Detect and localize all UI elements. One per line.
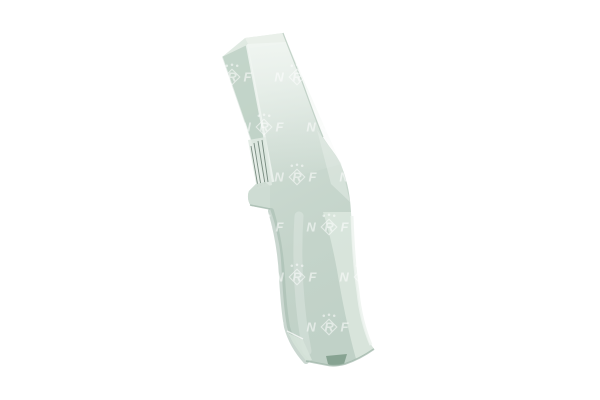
- watermark-letter: N: [144, 70, 154, 85]
- watermark-dot: [393, 313, 396, 316]
- watermark-dot: [236, 164, 239, 167]
- watermark-dot: [73, 214, 76, 217]
- watermark-letter: N: [534, 170, 544, 185]
- watermark-letter: N: [404, 270, 414, 285]
- watermark-dot: [523, 113, 526, 116]
- watermark-letter: F: [309, 70, 318, 85]
- watermark-letter: R: [129, 220, 139, 235]
- watermark-dot: [356, 64, 359, 67]
- watermark-dot: [593, 314, 596, 317]
- watermark-letter: N: [404, 170, 414, 185]
- watermark-letter: F: [341, 20, 350, 35]
- watermark-dot: [138, 114, 141, 117]
- watermark-dot: [361, 63, 364, 65]
- watermark-dot: [333, 14, 336, 17]
- watermark-dot: [101, 363, 104, 366]
- watermark-dot: [31, 264, 34, 267]
- watermark-letter: F: [81, 20, 90, 35]
- watermark-letter: N: [241, 220, 251, 235]
- watermark-letter: R: [454, 120, 464, 135]
- watermark-letter: R: [487, 70, 497, 85]
- watermark-dot: [226, 64, 229, 67]
- watermark-letter: N: [436, 120, 446, 135]
- watermark-letter: F: [309, 370, 318, 385]
- watermark-letter: F: [471, 220, 480, 235]
- watermark-dot: [588, 13, 591, 16]
- watermark-letter: F: [504, 370, 513, 385]
- watermark-letter: N: [144, 370, 154, 385]
- watermark-dot: [388, 214, 391, 217]
- watermark-letter: R: [584, 220, 594, 235]
- watermark-dot: [231, 363, 234, 366]
- watermark-letter: R: [552, 170, 562, 185]
- watermark-letter: F: [439, 270, 448, 285]
- watermark-letter: N: [79, 170, 89, 185]
- watermark-letter: F: [146, 320, 155, 335]
- watermark-dot: [593, 214, 596, 217]
- watermark-letter: R: [357, 370, 367, 385]
- watermark-letter: R: [357, 170, 367, 185]
- watermark-letter: F: [244, 70, 253, 85]
- watermark-dot: [551, 264, 554, 267]
- watermark-letter: N: [144, 270, 154, 285]
- watermark-letter: N: [371, 220, 381, 235]
- watermark-letter: R: [454, 20, 464, 35]
- watermark-letter: F: [536, 120, 545, 135]
- watermark-letter: N: [306, 320, 316, 335]
- watermark-dot: [366, 64, 369, 67]
- watermark-letter: F: [406, 120, 415, 135]
- watermark-letter: R: [227, 270, 237, 285]
- watermark-letter: F: [504, 70, 513, 85]
- watermark-dot: [556, 363, 559, 366]
- watermark-dot: [161, 364, 164, 367]
- watermark-letter: F: [114, 70, 123, 85]
- watermark-letter: F: [374, 70, 383, 85]
- watermark-dot: [263, 313, 266, 316]
- watermark-letter: R: [519, 120, 529, 135]
- watermark-dot: [328, 113, 331, 116]
- watermark-dot: [258, 314, 261, 317]
- watermark-letter: R: [487, 370, 497, 385]
- watermark-letter: F: [341, 220, 350, 235]
- watermark-letter: F: [114, 370, 123, 385]
- watermark-dot: [161, 264, 164, 267]
- watermark-dot: [203, 114, 206, 117]
- watermark-letter: N: [46, 120, 56, 135]
- watermark-dot: [36, 363, 39, 366]
- watermark-letter: F: [16, 120, 25, 135]
- watermark-dot: [561, 264, 564, 267]
- watermark-letter: N: [371, 120, 381, 135]
- watermark-letter: N: [14, 170, 24, 185]
- watermark-dot: [356, 164, 359, 167]
- watermark-dot: [593, 14, 596, 17]
- watermark-dot: [68, 213, 71, 216]
- watermark-dot: [291, 364, 294, 367]
- watermark-letter: F: [471, 20, 480, 35]
- watermark-letter: N: [46, 320, 56, 335]
- watermark-letter: F: [569, 270, 578, 285]
- watermark-dot: [203, 214, 206, 217]
- watermark-letter: R: [32, 370, 42, 385]
- watermark-letter: N: [241, 20, 251, 35]
- watermark-dot: [193, 214, 196, 217]
- watermark-letter: F: [276, 320, 285, 335]
- watermark-dot: [193, 14, 196, 17]
- watermark-dot: [203, 314, 206, 317]
- watermark-dot: [486, 364, 489, 367]
- watermark-dot: [96, 64, 99, 67]
- watermark-letter: N: [79, 370, 89, 385]
- watermark-dot: [463, 214, 466, 217]
- watermark-letter: R: [487, 270, 497, 285]
- watermark-letter: F: [244, 370, 253, 385]
- watermark-letter: R: [259, 320, 269, 335]
- watermark-letter: R: [259, 220, 269, 235]
- watermark-dot: [193, 314, 196, 317]
- watermark-dot: [166, 63, 169, 65]
- watermark-dot: [3, 313, 6, 316]
- watermark-letter: F: [504, 170, 513, 185]
- watermark-letter: R: [194, 320, 204, 335]
- watermark-letter: N: [79, 270, 89, 285]
- watermark-dot: [193, 114, 196, 117]
- watermark-letter: N: [111, 220, 121, 235]
- watermark-dot: [588, 113, 591, 116]
- watermark-dot: [496, 264, 499, 267]
- watermark-dot: [491, 163, 494, 166]
- watermark-letter: F: [179, 70, 188, 85]
- watermark-dot: [398, 214, 401, 217]
- watermark-dot: [398, 114, 401, 117]
- watermark-dot: [3, 13, 6, 16]
- watermark-letter: N: [306, 20, 316, 35]
- watermark-dot: [556, 263, 559, 266]
- watermark-letter: R: [259, 20, 269, 35]
- watermark-letter: N: [274, 170, 284, 185]
- watermark-letter: F: [114, 270, 123, 285]
- watermark-dot: [96, 164, 99, 167]
- watermark-dot: [426, 263, 429, 266]
- watermark-letter: N: [46, 20, 56, 35]
- watermark-letter: F: [309, 270, 318, 285]
- watermark-dot: [583, 14, 586, 17]
- watermark-dot: [166, 363, 169, 366]
- watermark-letter: F: [179, 270, 188, 285]
- watermark-dot: [366, 264, 369, 267]
- watermark-letter: F: [569, 70, 578, 85]
- watermark-letter: F: [179, 370, 188, 385]
- watermark-dot: [323, 114, 326, 117]
- watermark-dot: [63, 14, 66, 17]
- watermark-letter: F: [536, 20, 545, 35]
- watermark-letter: F: [244, 170, 253, 185]
- watermark-letter: R: [0, 220, 9, 235]
- watermark-dot: [491, 63, 494, 65]
- watermark-letter: R: [584, 20, 594, 35]
- watermark-letter: N: [566, 320, 576, 335]
- watermark-letter: N: [241, 120, 251, 135]
- watermark-letter: N: [469, 270, 479, 285]
- watermark-letter: N: [501, 120, 511, 135]
- watermark-dot: [68, 313, 71, 316]
- watermark-letter: R: [552, 370, 562, 385]
- watermark-dot: [236, 64, 239, 67]
- watermark-dot: [198, 313, 201, 316]
- watermark-dot: [8, 114, 11, 117]
- watermark-letter: R: [97, 270, 107, 285]
- watermark-letter: N: [176, 320, 186, 335]
- watermark-dot: [491, 263, 494, 266]
- watermark-letter: R: [422, 370, 432, 385]
- watermark-letter: F: [406, 320, 415, 335]
- watermark-dot: [128, 314, 131, 317]
- watermark-dot: [458, 313, 461, 316]
- watermark-letter: F: [569, 170, 578, 185]
- watermark-dot: [291, 264, 294, 267]
- watermark-letter: R: [422, 70, 432, 85]
- watermark-letter: N: [436, 220, 446, 235]
- watermark-letter: R: [129, 320, 139, 335]
- watermark-letter: N: [274, 70, 284, 85]
- watermark-letter: F: [569, 370, 578, 385]
- watermark-letter: R: [389, 120, 399, 135]
- watermark-dot: [296, 63, 299, 65]
- watermark-dot: [41, 264, 44, 267]
- watermark-dot: [106, 164, 109, 167]
- watermark-dot: [263, 13, 266, 16]
- watermark-letter: N: [274, 370, 284, 385]
- watermark-dot: [226, 164, 229, 167]
- watermark-dot: [291, 164, 294, 167]
- watermark-letter: N: [534, 370, 544, 385]
- watermark-dot: [268, 14, 271, 17]
- watermark-letter: R: [64, 20, 74, 35]
- watermark-dot: [133, 213, 136, 216]
- watermark-dot: [226, 264, 229, 267]
- watermark-letter: N: [404, 370, 414, 385]
- watermark-letter: F: [16, 320, 25, 335]
- watermark-letter: R: [259, 120, 269, 135]
- watermark-letter: N: [14, 370, 24, 385]
- watermark-letter: N: [176, 20, 186, 35]
- watermark-dot: [361, 263, 364, 266]
- watermark-dot: [453, 14, 456, 17]
- watermark-letter: R: [454, 320, 464, 335]
- watermark-dot: [458, 13, 461, 16]
- watermark-dot: [31, 64, 34, 67]
- watermark-dot: [431, 364, 434, 367]
- watermark-dot: [551, 364, 554, 367]
- watermark-dot: [106, 264, 109, 267]
- watermark-dot: [63, 214, 66, 217]
- watermark-letter: N: [274, 270, 284, 285]
- watermark-letter: N: [111, 320, 121, 335]
- watermark-letter: F: [276, 120, 285, 135]
- watermark-dot: [138, 14, 141, 17]
- watermark-letter: R: [0, 320, 9, 335]
- watermark-letter: F: [114, 170, 123, 185]
- watermark-dot: [523, 313, 526, 316]
- watermark-letter: F: [49, 270, 58, 285]
- watermark-letter: R: [97, 170, 107, 185]
- watermark-letter: F: [244, 270, 253, 285]
- part-image: NRFNRFNRFNRFNRFNRFNRFNRFNRFNRFNRFNRFNRFN…: [0, 0, 600, 400]
- watermark-dot: [198, 213, 201, 216]
- watermark-dot: [8, 314, 11, 317]
- watermark-letter: R: [32, 270, 42, 285]
- watermark-dot: [301, 164, 304, 167]
- watermark-letter: R: [584, 120, 594, 135]
- watermark-letter: R: [519, 320, 529, 335]
- watermark-dot: [296, 263, 299, 266]
- watermark-letter: R: [97, 70, 107, 85]
- watermark-letter: R: [389, 20, 399, 35]
- watermark-dot: [561, 364, 564, 367]
- watermark-dot: [198, 13, 201, 16]
- watermark-letter: R: [194, 220, 204, 235]
- watermark-letter: F: [406, 220, 415, 235]
- watermark-dot: [528, 214, 531, 217]
- watermark-letter: R: [584, 320, 594, 335]
- watermark-dot: [583, 114, 586, 117]
- watermark-letter: R: [292, 270, 302, 285]
- watermark-letter: N: [501, 220, 511, 235]
- watermark-dot: [3, 213, 6, 216]
- watermark-dot: [171, 164, 174, 167]
- watermark-dot: [323, 214, 326, 217]
- watermark-letter: N: [209, 70, 219, 85]
- watermark-letter: R: [422, 170, 432, 185]
- product-photo: NRFNRFNRFNRFNRFNRFNRFNRFNRFNRFNRFNRFNRFN…: [0, 0, 600, 400]
- watermark-letter: R: [292, 170, 302, 185]
- watermark-dot: [263, 213, 266, 216]
- watermark-dot: [518, 14, 521, 17]
- watermark-dot: [41, 64, 44, 67]
- watermark-letter: R: [194, 20, 204, 35]
- watermark-dot: [431, 264, 434, 267]
- watermark-dot: [518, 314, 521, 317]
- watermark-dot: [463, 314, 466, 317]
- watermark-dot: [31, 364, 34, 367]
- watermark-letter: N: [209, 170, 219, 185]
- watermark-letter: R: [324, 20, 334, 35]
- watermark-dot: [518, 114, 521, 117]
- watermark-letter: R: [129, 20, 139, 35]
- watermark-letter: R: [97, 370, 107, 385]
- watermark-dot: [458, 113, 461, 116]
- watermark-dot: [463, 114, 466, 117]
- watermark-dot: [496, 164, 499, 167]
- watermark-dot: [138, 214, 141, 217]
- watermark-letter: F: [146, 20, 155, 35]
- watermark-dot: [556, 163, 559, 166]
- watermark-letter: N: [339, 370, 349, 385]
- watermark-letter: R: [389, 220, 399, 235]
- watermark-dot: [458, 213, 461, 216]
- watermark-letter: N: [339, 270, 349, 285]
- watermark-dot: [31, 164, 34, 167]
- watermark-dot: [226, 364, 229, 367]
- watermark-letter: F: [211, 20, 220, 35]
- watermark-dot: [431, 164, 434, 167]
- watermark-dot: [133, 113, 136, 116]
- watermark-dot: [101, 263, 104, 266]
- watermark-letter: R: [162, 270, 172, 285]
- watermark-dot: [561, 164, 564, 167]
- watermark-letter: R: [0, 120, 9, 135]
- watermark-letter: N: [339, 70, 349, 85]
- watermark-dot: [96, 364, 99, 367]
- watermark-letter: R: [162, 170, 172, 185]
- watermark-letter: N: [566, 20, 576, 35]
- watermark-letter: F: [374, 370, 383, 385]
- watermark-letter: R: [357, 270, 367, 285]
- watermark-dot: [171, 364, 174, 367]
- watermark-letter: R: [422, 270, 432, 285]
- watermark-dot: [133, 313, 136, 316]
- watermark-letter: F: [406, 20, 415, 35]
- watermark-letter: R: [64, 120, 74, 135]
- watermark-letter: R: [552, 70, 562, 85]
- watermark-dot: [41, 164, 44, 167]
- watermark-dot: [393, 13, 396, 16]
- watermark-letter: R: [227, 70, 237, 85]
- watermark-dot: [258, 214, 261, 217]
- watermark-dot: [393, 113, 396, 116]
- watermark-dot: [63, 314, 66, 317]
- watermark-letter: F: [439, 170, 448, 185]
- watermark-dot: [453, 114, 456, 117]
- watermark-letter: N: [209, 370, 219, 385]
- watermark-dot: [551, 64, 554, 67]
- watermark-dot: [296, 363, 299, 366]
- watermark-dot: [328, 213, 331, 216]
- watermark-letter: R: [64, 320, 74, 335]
- watermark-letter: R: [32, 70, 42, 85]
- watermark-dot: [328, 13, 331, 16]
- watermark-dot: [463, 14, 466, 17]
- watermark-dot: [133, 13, 136, 16]
- watermark-dot: [588, 213, 591, 216]
- watermark-dot: [583, 214, 586, 217]
- watermark-dot: [361, 363, 364, 366]
- watermark-letter: R: [357, 70, 367, 85]
- watermark-letter: N: [371, 20, 381, 35]
- watermark-letter: F: [49, 370, 58, 385]
- watermark-dot: [556, 63, 559, 65]
- watermark-letter: N: [534, 70, 544, 85]
- watermark-letter: N: [241, 320, 251, 335]
- watermark-letter: F: [341, 120, 350, 135]
- watermark-dot: [8, 14, 11, 17]
- watermark-dot: [198, 113, 201, 116]
- watermark-dot: [593, 114, 596, 117]
- watermark-dot: [63, 114, 66, 117]
- watermark-dot: [421, 264, 424, 267]
- watermark-dot: [73, 314, 76, 317]
- watermark-dot: [301, 64, 304, 67]
- watermark-letter: R: [324, 120, 334, 135]
- watermark-letter: R: [0, 20, 9, 35]
- watermark-letter: N: [501, 20, 511, 35]
- watermark-dot: [486, 164, 489, 167]
- watermark-letter: F: [504, 270, 513, 285]
- watermark-letter: N: [79, 70, 89, 85]
- watermark-dot: [36, 63, 39, 65]
- watermark-dot: [268, 214, 271, 217]
